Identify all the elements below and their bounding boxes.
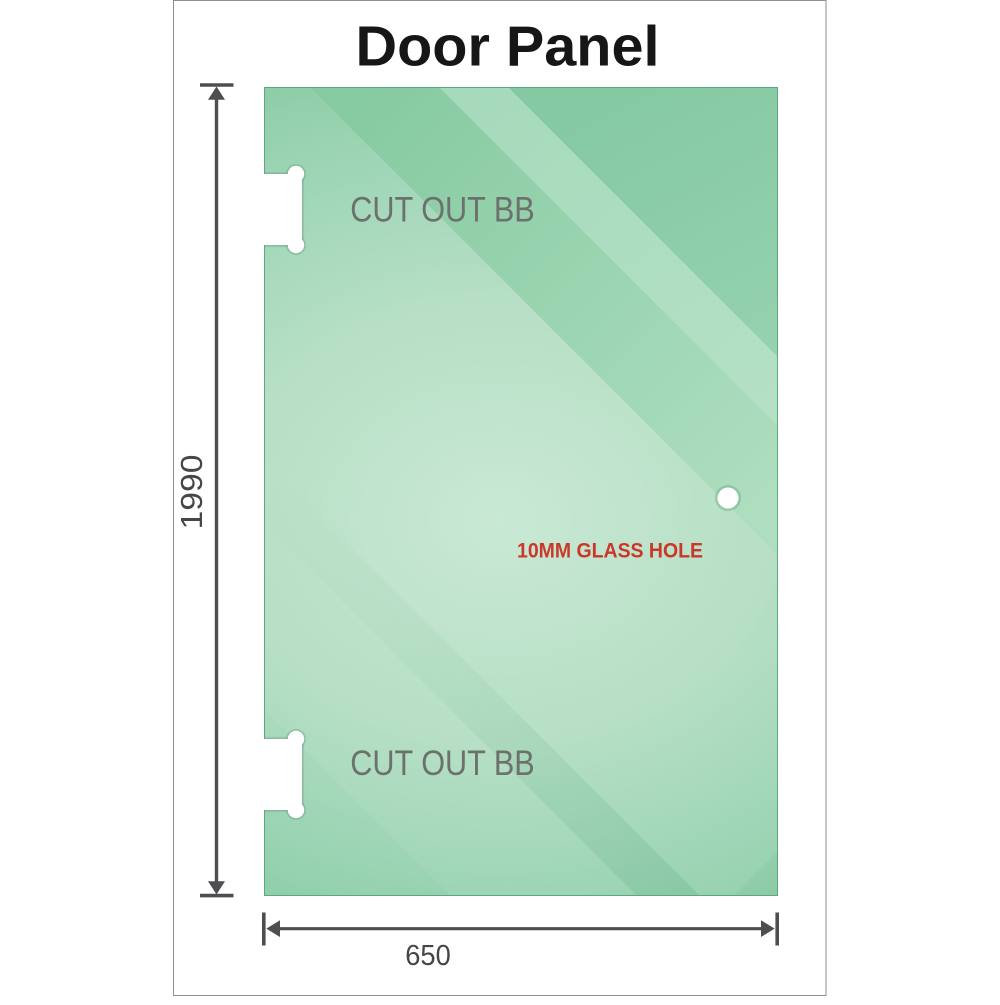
svg-text:CUT OUT BB: CUT OUT BB [350, 190, 535, 229]
svg-text:650: 650 [405, 940, 451, 972]
svg-text:10MM GLASS HOLE: 10MM GLASS HOLE [517, 538, 703, 562]
svg-text:Door Panel: Door Panel [356, 15, 660, 79]
svg-text:CUT OUT BB: CUT OUT BB [350, 744, 535, 783]
svg-text:1990: 1990 [174, 455, 209, 530]
